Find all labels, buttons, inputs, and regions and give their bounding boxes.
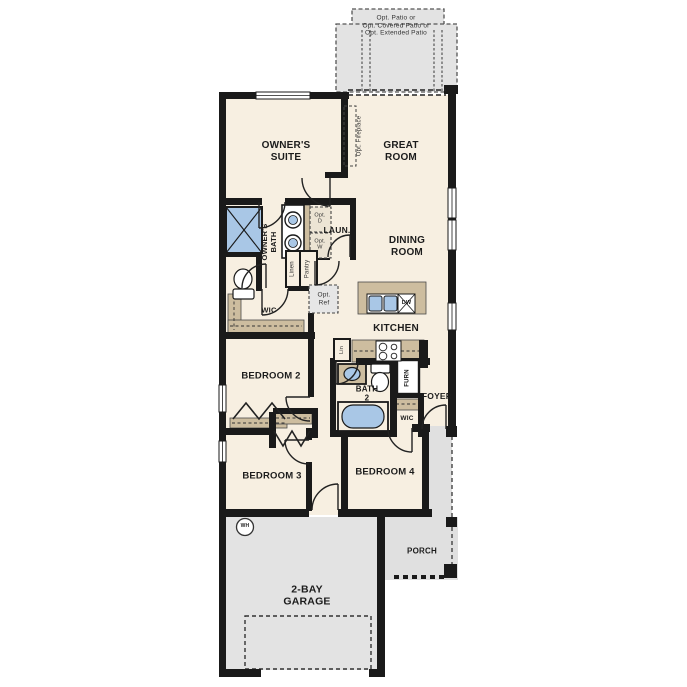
linen-label: Linen [289, 261, 296, 277]
opt-ref-label: Opt. Ref [317, 291, 330, 306]
island-sink [367, 294, 398, 313]
kitchen-label: KITCHEN [373, 323, 419, 335]
dining-room-label: DINING ROOM [389, 235, 425, 259]
bedroom4-label: BEDROOM 4 [355, 466, 414, 477]
wic-shelf-bottom [228, 320, 304, 333]
range [376, 341, 401, 361]
garage-label: 2-BAY GARAGE [283, 584, 330, 609]
opt-washer-label: Opt. W [314, 239, 325, 252]
owners-bath-label: OWNER'S BATH [261, 224, 279, 261]
water-heater-label: WH [241, 524, 250, 530]
toilet-owners [233, 269, 254, 299]
bath2-label: BATH 2 [356, 385, 378, 404]
owners-wic-label: WIC [261, 307, 276, 316]
bedroom4-wic-shelf [394, 399, 422, 410]
bedroom2-label: BEDROOM 2 [241, 370, 300, 381]
opt-fireplace-label: Opt. Fireplace [356, 116, 363, 156]
patio-label: Opt. Patio or Opt. Covered Patio or Opt.… [362, 15, 429, 38]
dishwasher-label: DW [402, 300, 412, 306]
pantry-label: Pantry [304, 260, 311, 279]
opt-dryer-label: Opt. D [314, 213, 325, 226]
laundry-label: LAUN. [324, 225, 351, 235]
bedroom4-wic-label: WIC [400, 415, 413, 423]
owners-suite-label: OWNER'S SUITE [262, 140, 311, 164]
porch-label: PORCH [407, 546, 437, 555]
furnace-label: FURN [404, 369, 411, 386]
bath2-tub [342, 405, 384, 428]
linen2-label: Lin [339, 346, 345, 354]
bedroom3-label: BEDROOM 3 [242, 470, 301, 481]
floor-plan: Opt. Patio or Opt. Covered Patio or Opt.… [0, 0, 687, 687]
shower [226, 207, 262, 253]
floor-plan-drawing [0, 0, 687, 687]
bath2-sink [344, 368, 360, 381]
foyer-label: FOYER [422, 391, 452, 401]
great-room-label: GREAT ROOM [383, 140, 418, 164]
